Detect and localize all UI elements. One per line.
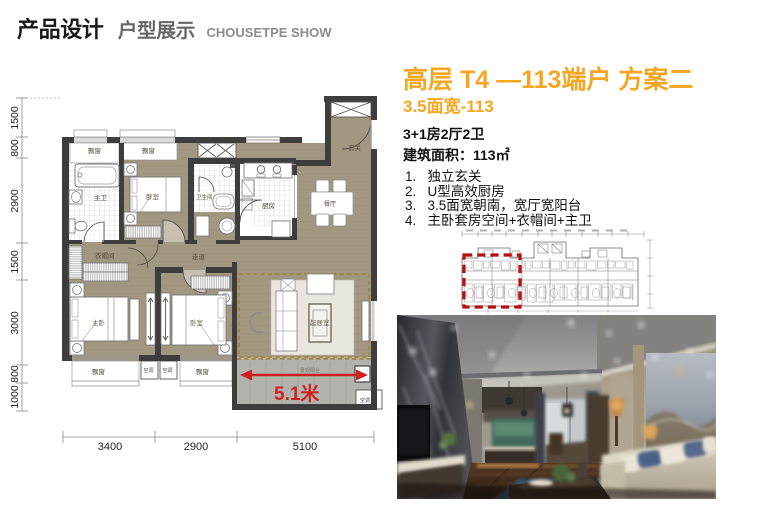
svg-text:走道: 走道: [192, 252, 206, 261]
svg-text:5.1米: 5.1米: [274, 382, 320, 405]
svg-text:卫生间: 卫生间: [196, 193, 213, 201]
svg-text:飘窗: 飘窗: [92, 367, 105, 376]
svg-text:飘窗: 飘窗: [88, 146, 101, 155]
svg-text:厨房: 厨房: [262, 201, 275, 210]
svg-text:起居室: 起居室: [310, 318, 330, 327]
svg-text:1000: 1000: [9, 385, 21, 409]
svg-text:主卫: 主卫: [94, 193, 108, 202]
svg-text:飘窗: 飘窗: [142, 146, 155, 155]
svg-text:卧室: 卧室: [146, 192, 160, 201]
svg-text:空调: 空调: [360, 397, 370, 404]
svg-text:800: 800: [9, 365, 21, 383]
svg-text:1500: 1500: [9, 250, 21, 274]
svg-text:玄关: 玄关: [348, 143, 362, 152]
svg-text:3400: 3400: [98, 441, 122, 453]
svg-text:1500: 1500: [9, 106, 21, 130]
svg-text:空调: 空调: [144, 367, 154, 374]
svg-text:2900: 2900: [9, 189, 21, 213]
svg-text:2900: 2900: [184, 441, 208, 453]
svg-text:景观阳台: 景观阳台: [300, 367, 320, 374]
svg-text:衣帽间: 衣帽间: [95, 251, 115, 260]
svg-text:800: 800: [9, 139, 21, 157]
svg-text:5100: 5100: [293, 441, 317, 453]
svg-text:餐厅: 餐厅: [324, 200, 336, 208]
svg-text:飘窗: 飘窗: [196, 367, 209, 376]
svg-text:3000: 3000: [9, 311, 21, 335]
svg-text:主卧: 主卧: [92, 318, 106, 327]
svg-text:卧室: 卧室: [190, 318, 204, 327]
svg-text:空调: 空调: [163, 367, 173, 374]
